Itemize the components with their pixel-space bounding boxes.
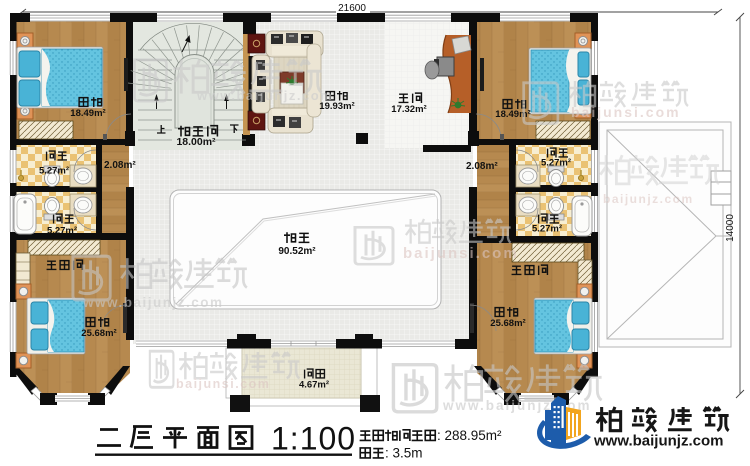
svg-text:5.27m²: 5.27m² — [39, 166, 69, 177]
svg-text:baijunjz.com: baijunjz.com — [603, 192, 694, 206]
svg-text:18.00m²: 18.00m² — [176, 136, 216, 148]
svg-text:baijunsi.com: baijunsi.com — [403, 245, 519, 262]
svg-text:2.08m²: 2.08m² — [104, 160, 136, 171]
svg-text:www.baijunjz.com: www.baijunjz.com — [196, 88, 333, 103]
svg-text:www.baijunjz.com: www.baijunjz.com — [593, 433, 723, 450]
svg-text:90.52m²: 90.52m² — [278, 246, 316, 257]
svg-text:www.baijunjz.com: www.baijunjz.com — [82, 295, 224, 310]
svg-text:4.67m²: 4.67m² — [299, 380, 329, 391]
svg-text:baijunsi.com: baijunsi.com — [176, 377, 270, 391]
svg-text:5.27m²: 5.27m² — [47, 226, 77, 237]
svg-text:17.32m²: 17.32m² — [391, 104, 426, 115]
svg-text:1:100: 1:100 — [271, 421, 356, 457]
svg-text:25.68m²: 25.68m² — [81, 328, 116, 339]
svg-text:baijunsi.com: baijunsi.com — [571, 104, 681, 120]
svg-text:2.08m²: 2.08m² — [466, 161, 498, 172]
svg-text:25.68m²: 25.68m² — [490, 318, 525, 329]
svg-text:21600: 21600 — [338, 3, 366, 14]
svg-text:5.27m²: 5.27m² — [541, 158, 571, 169]
svg-text:: 288.95m²: : 288.95m² — [437, 428, 502, 443]
svg-text:5.27m²: 5.27m² — [532, 224, 562, 235]
svg-text:: 3.5m: : 3.5m — [385, 446, 423, 461]
svg-text:14000: 14000 — [725, 214, 736, 242]
svg-text:18.49m²: 18.49m² — [495, 109, 530, 120]
svg-text:18.49m²: 18.49m² — [70, 108, 105, 119]
